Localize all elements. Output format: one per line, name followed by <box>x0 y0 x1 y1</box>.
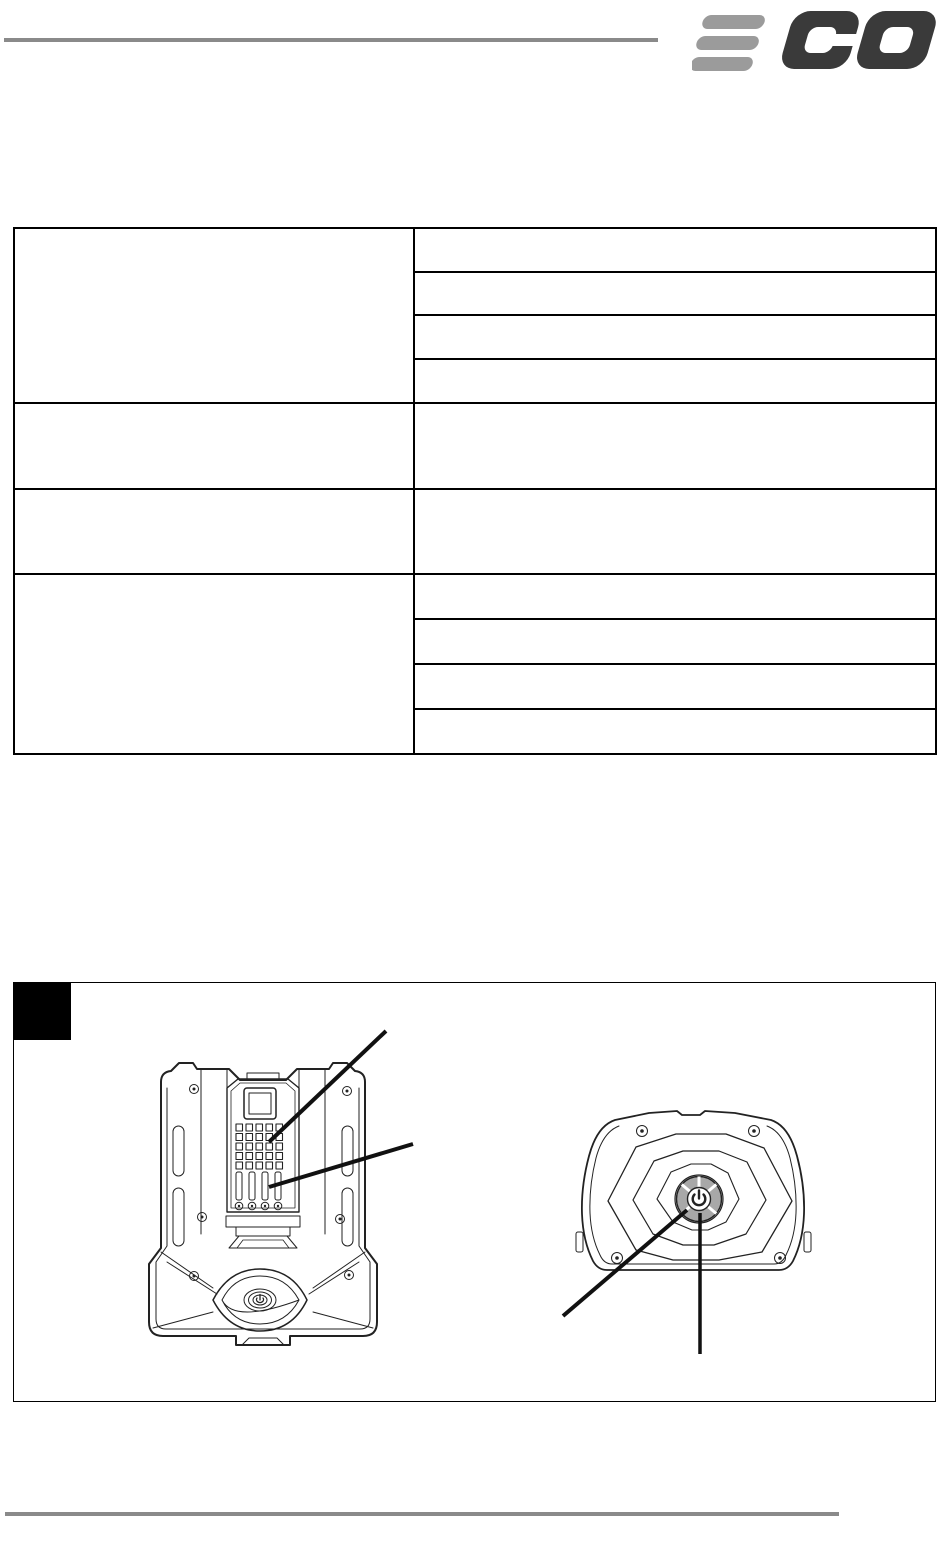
spec-group4-value-cell <box>414 619 936 664</box>
led-indicator-grid <box>236 1124 283 1169</box>
battery-pack-front-view-illustration <box>136 1026 423 1358</box>
callout-line-power-button-ring <box>563 1210 687 1316</box>
spec-group4-value-cell <box>414 664 936 709</box>
callout-line-terminals <box>269 1144 413 1187</box>
spec-group3-value-cell <box>414 489 936 574</box>
specification-table <box>13 227 937 755</box>
logo-letter-g <box>778 11 868 69</box>
header-rule <box>4 38 658 42</box>
spec-group3-label-cell <box>14 489 414 574</box>
spec-group1-value-cell <box>414 315 936 359</box>
battery-display-window <box>244 1088 276 1119</box>
footer-rule <box>5 1512 839 1516</box>
logo-e-bar <box>692 57 755 71</box>
spec-group4-value-cell <box>414 709 936 754</box>
spec-group2-value-cell <box>414 403 936 489</box>
ego-logo-icon <box>692 3 940 73</box>
spec-group4-label-cell <box>14 574 414 754</box>
logo-letter-o <box>853 11 940 69</box>
battery-terminals <box>235 1172 282 1210</box>
charge-indicator-power-icon <box>244 1289 276 1311</box>
figure-panel <box>13 982 936 1402</box>
battery-top-drawing <box>576 1111 811 1270</box>
manual-page <box>0 0 950 1568</box>
ego-logo <box>692 3 940 73</box>
logo-e-bar <box>701 15 767 29</box>
logo-e-bar <box>695 36 761 50</box>
spec-group1-value-cell <box>414 272 936 315</box>
spec-group1-value-cell <box>414 359 936 403</box>
battery-front-drawing <box>149 1063 377 1345</box>
spec-group2-label-cell <box>14 403 414 489</box>
callout-line-led-grid <box>269 1031 386 1142</box>
spec-group1-value-cell <box>414 228 936 272</box>
section-marker-square <box>13 982 71 1040</box>
spec-group1-label-cell <box>14 228 414 403</box>
battery-pack-top-view-illustration <box>551 1106 836 1361</box>
spec-group4-value-cell <box>414 574 936 619</box>
